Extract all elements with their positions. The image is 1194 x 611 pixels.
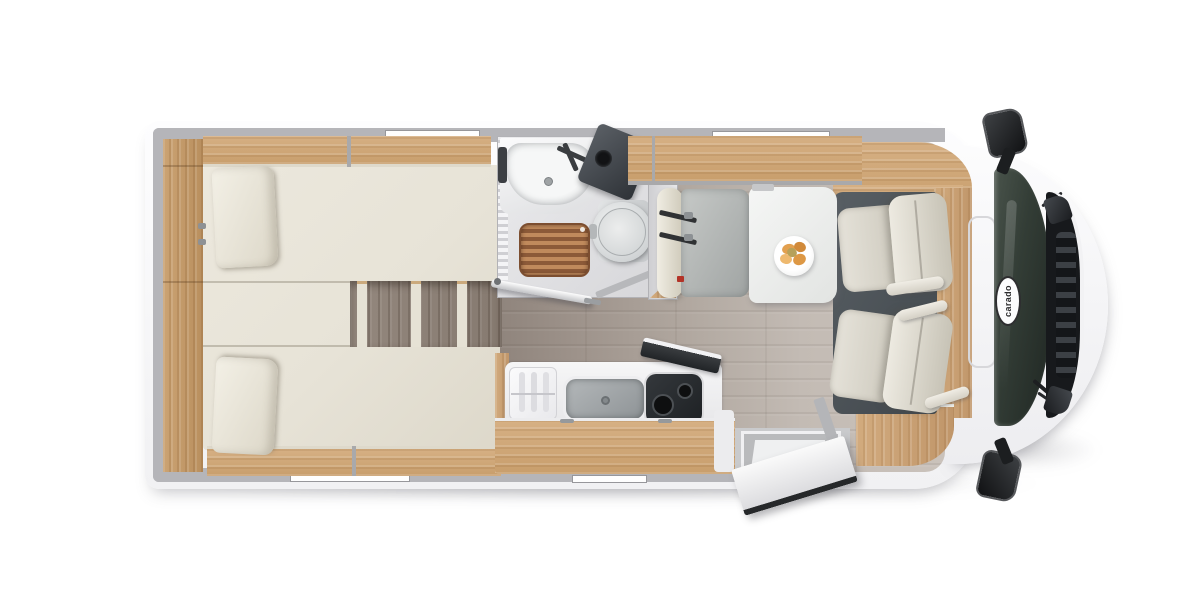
wardrobe-latch — [198, 223, 206, 229]
counter-end-cap — [714, 410, 734, 472]
pillow-left-bed — [211, 165, 278, 268]
door-pivot — [494, 278, 501, 285]
shower-riser-bar — [498, 147, 507, 183]
grate-plug — [580, 227, 585, 232]
motorhome-floorplan-canvas: carado — [0, 0, 1194, 611]
bed-seam-lower — [203, 345, 353, 347]
brand-badge: carado — [995, 276, 1021, 326]
bed-steps-recess — [350, 281, 502, 347]
cabinet-divider — [347, 136, 351, 167]
rack-bottle — [531, 372, 537, 412]
cabinet-divider — [652, 136, 655, 185]
seatbelt-buckle — [684, 234, 693, 241]
shower-grate — [519, 223, 590, 277]
toilet-lid — [598, 208, 646, 256]
cab-roof-panel — [968, 216, 996, 368]
bed-step-divider — [457, 281, 467, 347]
sink-drain — [601, 396, 610, 405]
hob-burner-small — [677, 383, 693, 399]
rack-bottle — [519, 372, 525, 412]
brand-label: carado — [1003, 285, 1013, 317]
kitchen-front-panel — [495, 418, 735, 474]
bed-step-divider — [357, 281, 367, 347]
wardrobe-seam — [163, 165, 203, 167]
table-wall-bracket — [752, 184, 774, 191]
window-bottom-kitchen — [572, 475, 647, 483]
seatbelt-buckle — [684, 212, 693, 219]
sink-drain — [544, 177, 553, 186]
toilet-hinge — [589, 224, 597, 239]
seatbelt-latch-red — [677, 276, 684, 282]
pillow-right-bed — [212, 356, 279, 455]
rack-wire — [511, 393, 555, 395]
grille-slats — [1056, 232, 1076, 378]
rack-bottle — [543, 372, 549, 412]
rear-wardrobe — [163, 139, 203, 472]
wardrobe-seam — [163, 281, 203, 283]
hob-burner-large — [652, 394, 674, 416]
bed-seam-upper — [203, 281, 353, 283]
kitchen-handle — [658, 419, 672, 423]
cabinet-divider — [352, 446, 356, 476]
kitchen-handle — [560, 419, 574, 423]
wardrobe-latch — [198, 239, 206, 245]
dinette-overhead-cabinet — [628, 136, 862, 185]
corner-cabinet-knob — [595, 150, 612, 167]
bed-step-divider — [411, 281, 421, 347]
